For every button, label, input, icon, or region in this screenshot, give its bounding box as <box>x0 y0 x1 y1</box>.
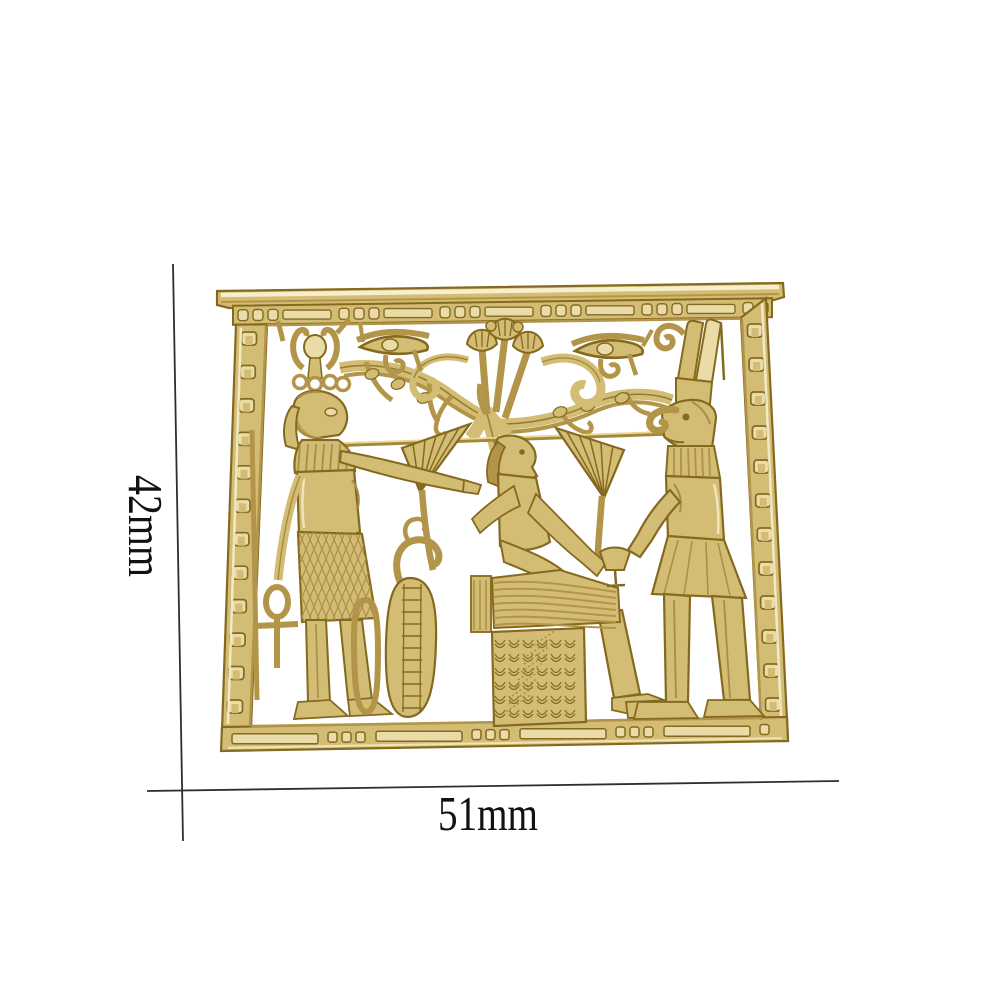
svg-text:42mm: 42mm <box>118 475 173 577</box>
svg-text:51mm: 51mm <box>438 786 538 841</box>
